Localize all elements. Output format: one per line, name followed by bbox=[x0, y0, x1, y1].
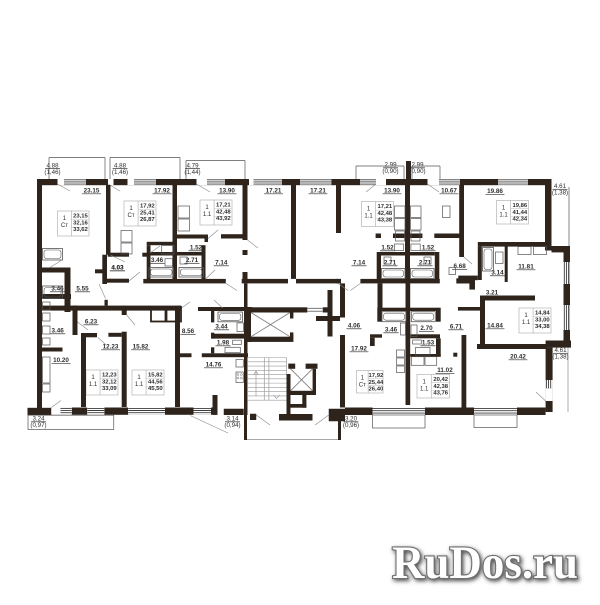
svg-text:17,21: 17,21 bbox=[377, 204, 392, 210]
svg-text:42,48: 42,48 bbox=[377, 211, 392, 217]
svg-text:25,44: 25,44 bbox=[369, 380, 384, 386]
svg-text:(0,90): (0,90) bbox=[409, 168, 425, 175]
svg-text:(1,46): (1,46) bbox=[112, 169, 128, 176]
svg-text:14,84: 14,84 bbox=[535, 310, 550, 316]
svg-text:Ст: Ст bbox=[61, 223, 68, 229]
svg-text:26,87: 26,87 bbox=[140, 217, 155, 223]
svg-text:1.1: 1.1 bbox=[364, 213, 373, 219]
svg-text:42,34: 42,34 bbox=[512, 217, 527, 223]
svg-text:32,16: 32,16 bbox=[73, 220, 88, 226]
svg-text:1.1: 1.1 bbox=[420, 386, 429, 392]
svg-text:(0,90): (0,90) bbox=[382, 168, 398, 175]
svg-text:Ст: Ст bbox=[127, 213, 134, 219]
svg-text:(1,46): (1,46) bbox=[44, 169, 60, 176]
svg-text:43,38: 43,38 bbox=[377, 218, 392, 224]
svg-text:15,82: 15,82 bbox=[148, 372, 163, 378]
svg-text:45,50: 45,50 bbox=[148, 386, 163, 392]
svg-text:33,62: 33,62 bbox=[73, 227, 88, 233]
svg-text:(0,97): (0,97) bbox=[30, 422, 46, 429]
svg-text:1.1: 1.1 bbox=[203, 212, 212, 218]
svg-text:42,38: 42,38 bbox=[433, 384, 448, 390]
svg-text:1.1: 1.1 bbox=[522, 320, 531, 326]
svg-text:1.1: 1.1 bbox=[135, 382, 144, 388]
svg-text:20,42: 20,42 bbox=[433, 377, 448, 383]
svg-text:(0,96): (0,96) bbox=[343, 422, 359, 429]
svg-text:(1,38): (1,38) bbox=[552, 354, 568, 361]
svg-text:33,00: 33,00 bbox=[535, 317, 550, 323]
svg-text:17,21: 17,21 bbox=[216, 202, 231, 208]
svg-text:43,76: 43,76 bbox=[433, 391, 448, 397]
svg-text:17,92: 17,92 bbox=[369, 373, 384, 379]
svg-text:44,56: 44,56 bbox=[148, 379, 163, 385]
svg-text:19,86: 19,86 bbox=[512, 203, 527, 209]
svg-text:1.1: 1.1 bbox=[499, 212, 508, 218]
svg-text:41,44: 41,44 bbox=[512, 210, 527, 216]
svg-text:(1,38): (1,38) bbox=[552, 190, 568, 197]
svg-text:RuDos.ru: RuDos.ru bbox=[392, 537, 578, 589]
svg-text:Ст: Ст bbox=[359, 382, 366, 388]
svg-text:17,92: 17,92 bbox=[140, 203, 155, 209]
svg-text:23,15: 23,15 bbox=[73, 213, 88, 219]
svg-text:33,09: 33,09 bbox=[102, 386, 117, 392]
svg-text:(0,94): (0,94) bbox=[224, 422, 240, 429]
svg-text:43,92: 43,92 bbox=[216, 216, 231, 222]
svg-text:26,40: 26,40 bbox=[369, 387, 384, 393]
svg-text:(1,44): (1,44) bbox=[184, 169, 200, 176]
svg-text:1.1: 1.1 bbox=[89, 382, 98, 388]
svg-text:25,41: 25,41 bbox=[140, 210, 155, 216]
svg-text:12,23: 12,23 bbox=[102, 372, 117, 378]
svg-text:42,48: 42,48 bbox=[216, 209, 231, 215]
svg-text:34,38: 34,38 bbox=[535, 324, 550, 330]
svg-text:32,12: 32,12 bbox=[102, 379, 117, 385]
